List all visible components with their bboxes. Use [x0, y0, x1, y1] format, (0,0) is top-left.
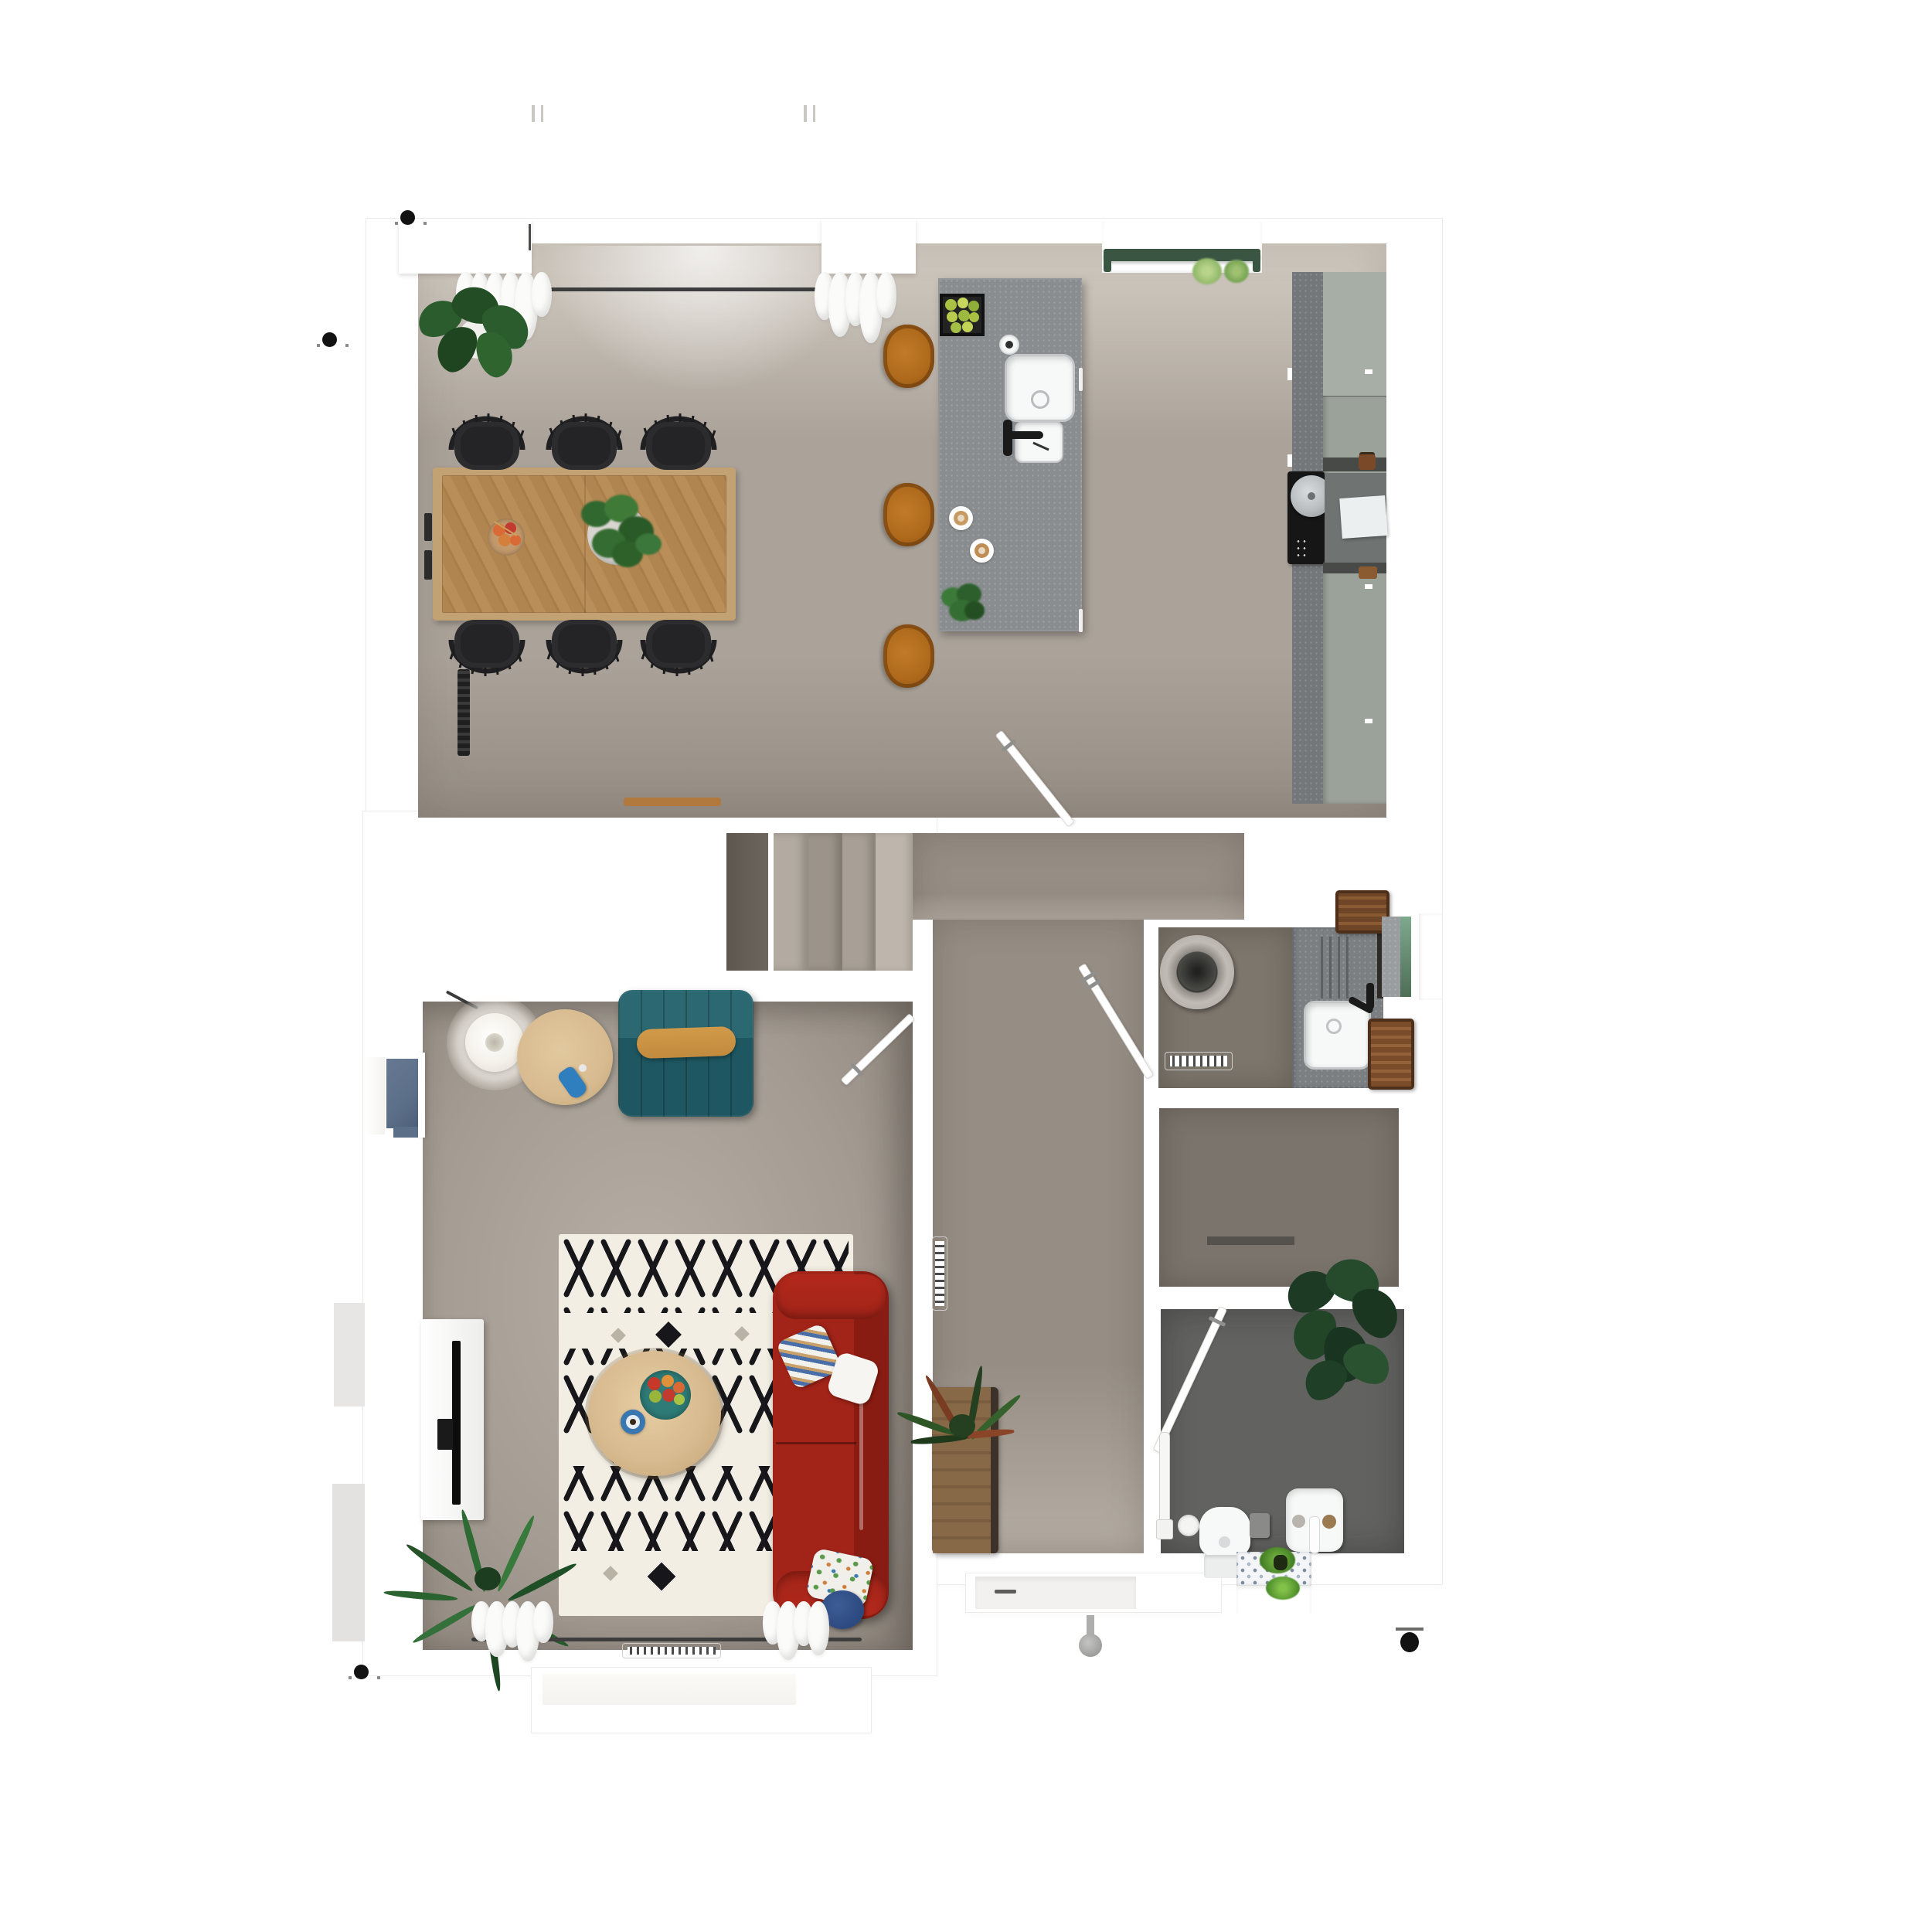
- pot-lid-knob: [1308, 492, 1315, 500]
- exterior-marker-west: [322, 332, 337, 347]
- bar-stool: [883, 325, 934, 388]
- shower-room-floor: [1159, 1108, 1399, 1287]
- cabinet-divider: [1323, 396, 1386, 397]
- south-window-glow: [543, 1674, 796, 1705]
- stair-tread: [808, 833, 842, 971]
- exterior-knob-southeast: [1400, 1632, 1419, 1652]
- utensil-crock: [1359, 454, 1376, 470]
- bath-stool: [1250, 1513, 1270, 1538]
- exterior-knob-bracket: [1396, 1628, 1423, 1631]
- shower-threshold-strip: [1207, 1236, 1294, 1245]
- fruit: [673, 1382, 685, 1393]
- fruit: [649, 1390, 662, 1403]
- west-window-sill: [418, 1053, 425, 1138]
- utility-sink-drain: [1326, 1019, 1342, 1034]
- utility-sink: [1304, 1001, 1371, 1070]
- radiator-dining-west: [457, 669, 470, 756]
- kitchen-wall-cabinet-east: [1323, 272, 1386, 396]
- radiator-bracket: [424, 513, 432, 541]
- window-planter-cap-right: [1253, 249, 1260, 272]
- porch-mat-line: [995, 1590, 1016, 1594]
- curtain-bunch-northeast: [821, 272, 896, 343]
- bar-stool: [883, 483, 934, 546]
- dining-chair: [447, 405, 527, 471]
- bar-stool: [883, 624, 934, 688]
- roof-tick: [532, 105, 535, 122]
- island-sink-small: [1015, 421, 1063, 463]
- dining-chair: [544, 405, 624, 471]
- exterior-ledge-west-1: [334, 1303, 365, 1406]
- curtain-bunch-southwest: [478, 1601, 553, 1662]
- west-window-recess: [365, 1057, 385, 1134]
- utility-window-glass: [1400, 917, 1411, 997]
- cabinet-handle: [1287, 454, 1292, 467]
- window-light-glow-north: [541, 246, 866, 393]
- threshold-mat: [624, 798, 721, 806]
- stair-tread: [842, 833, 876, 971]
- red-sofa-arm-top: [776, 1274, 886, 1319]
- hob-controls: [1295, 538, 1308, 558]
- radiator-bracket: [424, 550, 432, 580]
- fruit: [674, 1394, 685, 1405]
- sink-drain: [1031, 390, 1049, 409]
- roof-tick: [541, 105, 543, 122]
- wall-joint-mark: [529, 224, 531, 250]
- drainboard-grooves: [1321, 937, 1355, 998]
- island-handle: [1079, 368, 1083, 391]
- window-planter-cap-left: [1104, 249, 1111, 272]
- cabinet-handle: [1365, 719, 1372, 723]
- shelf-plant-dark: [1274, 1555, 1287, 1570]
- island-sink-main: [1005, 354, 1075, 422]
- porch-knob: [1079, 1634, 1102, 1657]
- hall-bench: [932, 1387, 997, 1553]
- oven-tray: [1339, 495, 1387, 539]
- utility-window-outer: [1419, 913, 1442, 1000]
- dining-chair: [544, 618, 624, 685]
- cabinet-handle: [1287, 368, 1292, 380]
- toilet-paper-holder: [1178, 1515, 1199, 1536]
- tv-stand: [437, 1419, 453, 1450]
- island-handle: [1079, 609, 1083, 632]
- lime-tray: [940, 294, 985, 336]
- stair-tread: [876, 833, 913, 971]
- shower-control: [1156, 1519, 1173, 1539]
- cutting-board: [1359, 566, 1377, 579]
- dining-chair: [638, 405, 719, 471]
- coffee-dot: [630, 1419, 636, 1425]
- bolster-pillow: [636, 1026, 736, 1059]
- fruit: [662, 1375, 674, 1387]
- cabinet-handle: [1365, 584, 1372, 589]
- dining-table: [433, 468, 736, 621]
- floor-lamp-core: [485, 1033, 504, 1052]
- roof-tick: [813, 105, 815, 122]
- roof-tick: [804, 105, 807, 122]
- island-faucet-arm: [1006, 431, 1043, 439]
- exterior-ledge-west-2: [332, 1484, 365, 1641]
- herb-plant-icon: [1224, 260, 1249, 283]
- floor-plan-stage: [0, 0, 1932, 1932]
- radiator-hallway: [932, 1236, 947, 1311]
- herb-plant-icon: [1192, 258, 1222, 284]
- towel-rail: [1159, 1432, 1170, 1523]
- coffee-table-small: [517, 1009, 613, 1105]
- fruit: [648, 1377, 661, 1390]
- backsplash-strip: [1323, 457, 1386, 471]
- blue-bottle-cap: [579, 1064, 587, 1072]
- stair-tread: [774, 833, 808, 971]
- radiator-living-south: [622, 1643, 721, 1658]
- red-sofa-seat-seam: [776, 1442, 856, 1444]
- stair-understair-shadow: [726, 833, 768, 971]
- blue-radiator-notch: [393, 1127, 418, 1138]
- blue-radiator-panel: [386, 1059, 418, 1128]
- utility-window-sill: [1382, 917, 1402, 997]
- curtain-bunch-southeast: [769, 1601, 829, 1660]
- exterior-marker-north: [400, 210, 415, 225]
- dining-chair: [638, 618, 719, 685]
- exterior-marker-southwest: [354, 1665, 369, 1679]
- hall-floor-upper: [913, 833, 1244, 920]
- cabinet-handle: [1365, 369, 1372, 374]
- soap-dispenser-cap: [1005, 341, 1013, 349]
- shelf-plant: [1266, 1577, 1300, 1600]
- window-bay-north-mid: [821, 219, 916, 274]
- stair-stringer: [768, 833, 774, 971]
- window-bay-northwest: [399, 219, 532, 274]
- wicker-basket: [1368, 1019, 1414, 1090]
- radiator-utility: [1165, 1052, 1233, 1070]
- tv-screen: [452, 1341, 461, 1505]
